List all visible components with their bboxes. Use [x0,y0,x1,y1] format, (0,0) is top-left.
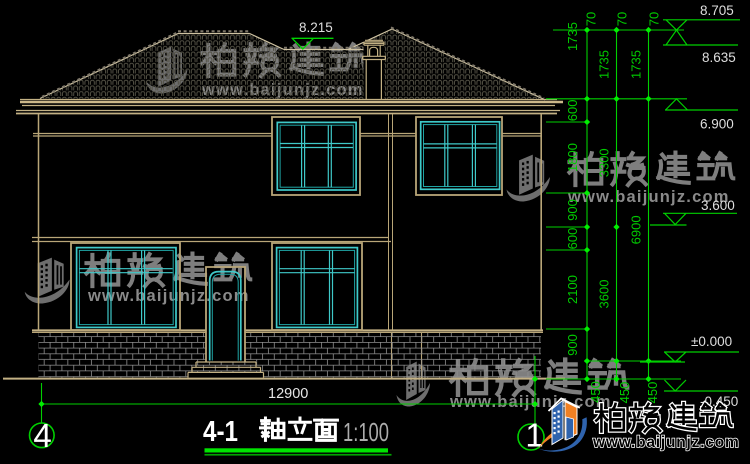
svg-text:450: 450 [617,382,632,404]
svg-text:1735: 1735 [597,50,612,79]
svg-text:8.215: 8.215 [299,20,333,35]
svg-text:6.900: 6.900 [700,117,734,132]
svg-text:3300: 3300 [597,148,612,177]
svg-text:www.baijunjz.com: www.baijunjz.com [592,434,740,451]
svg-text:4-1: 4-1 [203,416,238,448]
svg-text:600: 600 [565,100,580,122]
svg-text:±0.000: ±0.000 [691,334,732,349]
svg-text:70: 70 [615,12,630,26]
svg-text:450: 450 [645,382,660,404]
svg-text:8.635: 8.635 [702,50,736,65]
svg-text:3.600: 3.600 [701,198,735,213]
svg-text:2100: 2100 [565,275,580,304]
svg-text:8.705: 8.705 [700,3,734,18]
svg-text:6900: 6900 [629,215,644,244]
svg-text:600: 600 [565,228,580,250]
svg-text:450: 450 [588,381,603,403]
svg-text:1:100: 1:100 [343,417,389,447]
svg-text:70: 70 [584,12,599,26]
svg-text:12900: 12900 [268,386,308,402]
svg-text:900: 900 [565,334,580,356]
svg-text:1800: 1800 [565,143,580,172]
svg-text:1: 1 [525,417,543,454]
svg-text:900: 900 [565,199,580,221]
svg-text:70: 70 [647,12,662,26]
svg-text:3600: 3600 [597,280,612,309]
svg-text:1735: 1735 [565,22,580,51]
svg-text:4: 4 [33,417,51,454]
svg-text:1735: 1735 [629,50,644,79]
